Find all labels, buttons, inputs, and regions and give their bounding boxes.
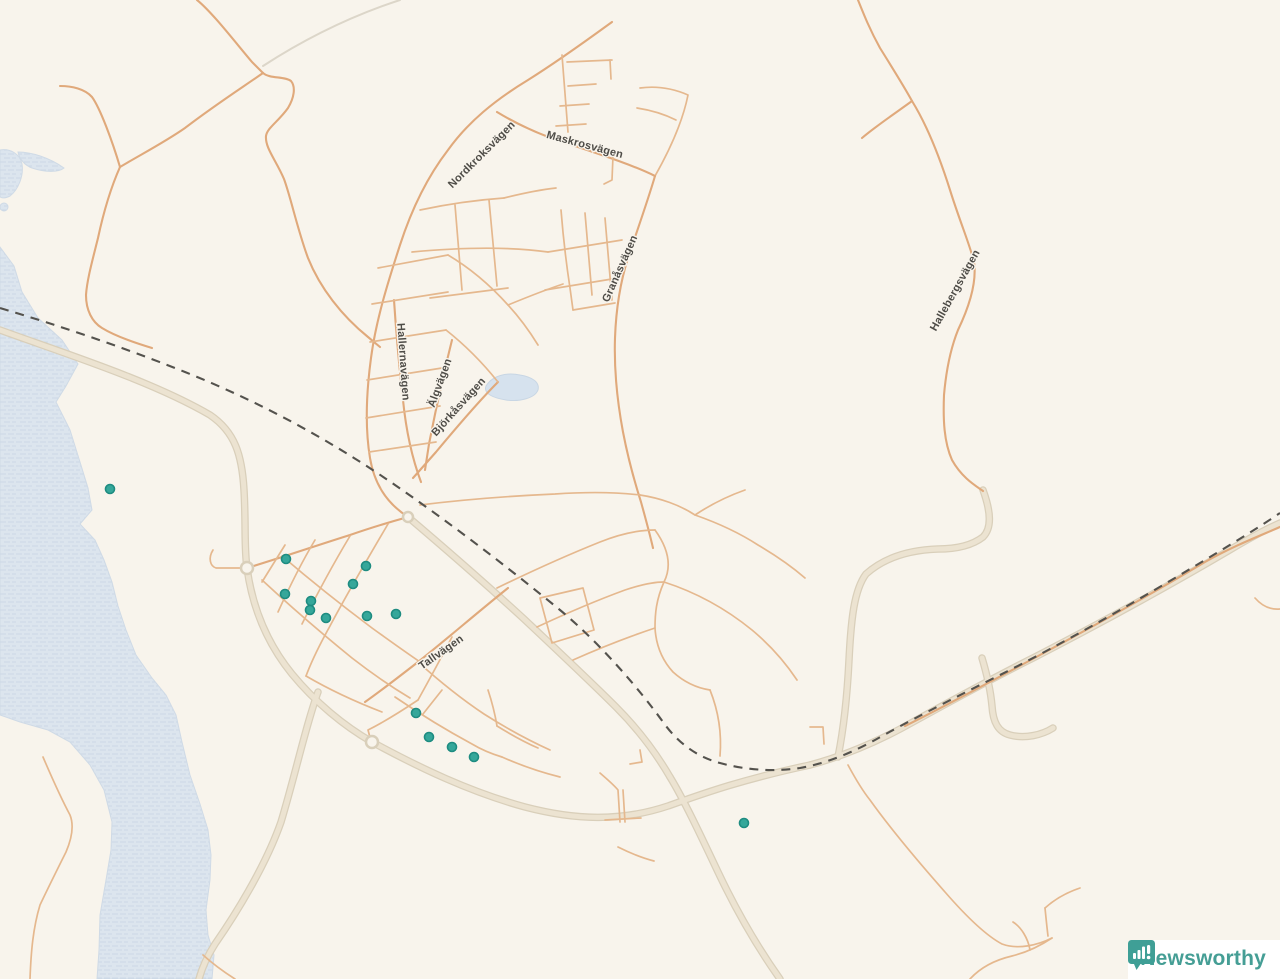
poi-marker[interactable] [307, 597, 316, 606]
poi-marker[interactable] [349, 580, 358, 589]
map-container: NordkroksvägenMaskrosvägenGranåsvägenHal… [0, 0, 1280, 979]
poi-marker[interactable] [425, 733, 434, 742]
river [0, 247, 214, 979]
small-pond [0, 203, 8, 211]
track-road [263, 0, 400, 66]
poi-marker[interactable] [362, 562, 371, 571]
street-labels-layer: NordkroksvägenMaskrosvägenGranåsvägenHal… [394, 119, 982, 672]
poi-marker[interactable] [282, 555, 291, 564]
street-label: Hallebergsvägen [928, 248, 983, 334]
poi-marker[interactable] [448, 743, 457, 752]
lake-arm [18, 152, 64, 171]
poi-marker[interactable] [106, 485, 115, 494]
poi-marker[interactable] [412, 709, 421, 718]
street-label: Hallernavägen [394, 323, 411, 402]
railway-line [0, 308, 1280, 770]
newsworthy-logo[interactable]: Newsworthy [1128, 940, 1280, 979]
poi-marker[interactable] [740, 819, 749, 828]
street-label: Älgvägen [425, 356, 455, 409]
logo-text: Newsworthy [1140, 947, 1266, 971]
street-label: Maskrosvägen [545, 129, 624, 161]
poi-marker[interactable] [363, 612, 372, 621]
map-canvas[interactable]: NordkroksvägenMaskrosvägenGranåsvägenHal… [0, 0, 1280, 979]
bar-chart-pin-icon [1128, 940, 1155, 970]
minor-roads-layer [30, 0, 1280, 979]
street-label: Tallvägen [417, 633, 466, 673]
poi-marker[interactable] [306, 606, 315, 615]
poi-marker[interactable] [322, 614, 331, 623]
poi-marker[interactable] [281, 590, 290, 599]
street-label: Nordkroksvägen [446, 119, 518, 191]
poi-marker[interactable] [392, 610, 401, 619]
poi-marker[interactable] [470, 753, 479, 762]
